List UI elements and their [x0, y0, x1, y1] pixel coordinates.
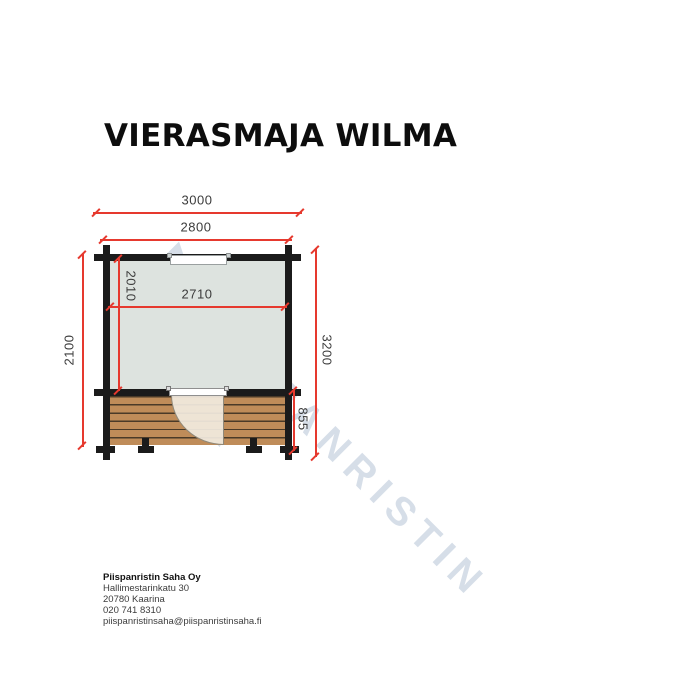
- footer-contact: Piispanristin Saha Oy Hallimestarinkatu …: [103, 572, 262, 627]
- log-end: [291, 254, 301, 261]
- dim-2100-label: 2100: [62, 335, 77, 366]
- wall-right: [285, 254, 292, 453]
- terrace-post: [138, 446, 154, 453]
- street-address: Hallimestarinkatu 30: [103, 583, 262, 594]
- dim-line-2710: [108, 306, 287, 308]
- phone-number: 020 741 8310: [103, 605, 262, 616]
- dim-2010-label: 2010: [124, 271, 139, 302]
- dim-line-2010: [118, 257, 120, 391]
- terrace-post: [250, 438, 257, 446]
- terrace-post: [246, 446, 262, 453]
- door-hinge: [166, 386, 171, 391]
- window-end-cap: [226, 253, 231, 258]
- postal-city: 20780 Kaarina: [103, 594, 262, 605]
- door-hinge: [224, 386, 229, 391]
- log-end: [94, 389, 104, 396]
- window: [170, 255, 227, 265]
- email-address: piispanristinsaha@piispanristinsaha.fi: [103, 616, 262, 627]
- dim-line-3200: [315, 248, 317, 457]
- dim-855-label: 855: [296, 407, 311, 430]
- dim-3000-label: 3000: [182, 193, 213, 208]
- dim-line-3000: [93, 212, 302, 214]
- log-end: [94, 254, 104, 261]
- dim-2800-label: 2800: [181, 220, 212, 235]
- door-leaf: [169, 388, 227, 396]
- terrace-post: [142, 438, 149, 446]
- log-end: [285, 245, 292, 255]
- window-end-cap: [167, 253, 172, 258]
- dim-line-2100: [82, 253, 84, 447]
- dim-line-2800: [100, 239, 292, 241]
- log-end: [103, 245, 110, 255]
- wall-left: [103, 254, 110, 453]
- dim-2710-label: 2710: [182, 287, 213, 302]
- dim-line-855: [293, 389, 295, 451]
- page-title: VIERASMAJA WILMA: [104, 118, 457, 154]
- company-name: Piispanristin Saha Oy: [103, 572, 262, 583]
- terrace-post: [103, 439, 110, 460]
- dim-3200-label: 3200: [320, 335, 335, 366]
